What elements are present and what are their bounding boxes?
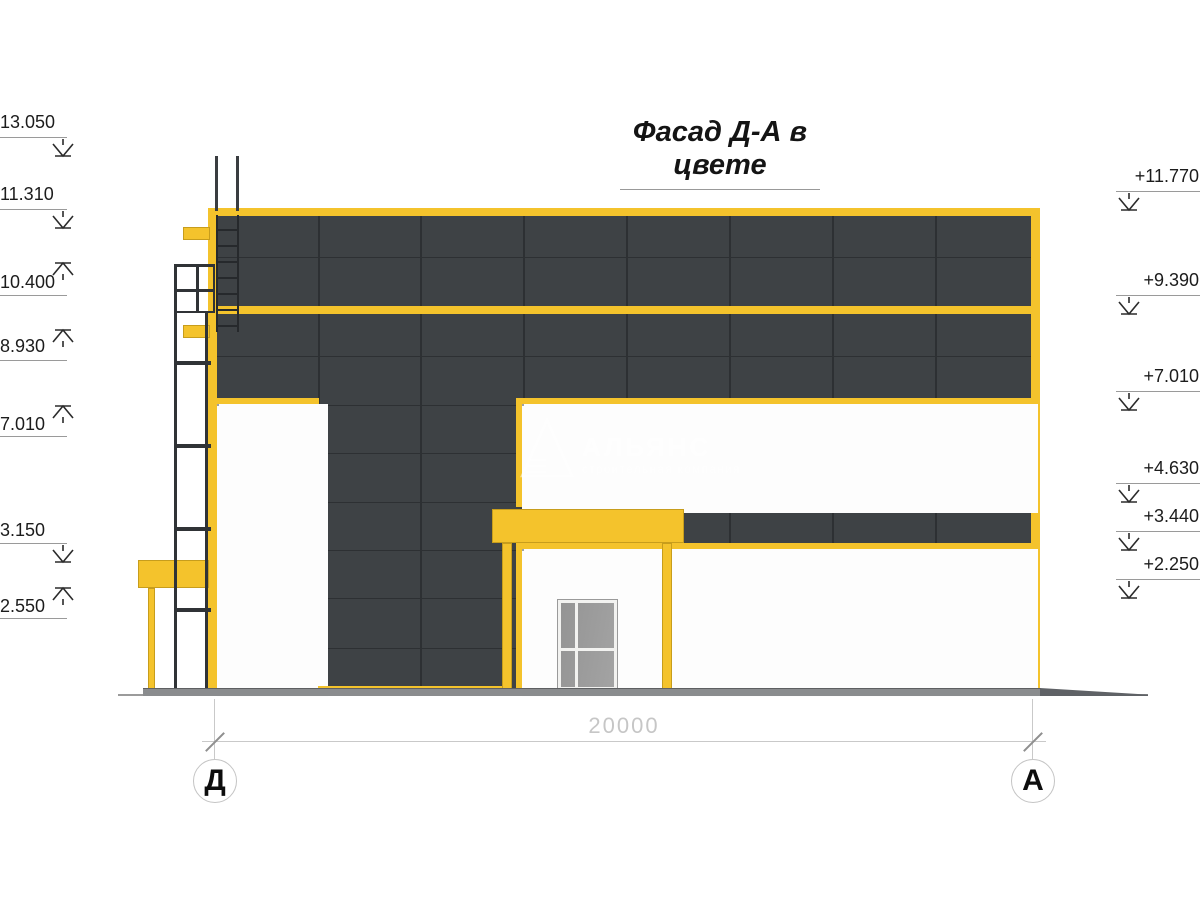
- elevation-value: +3.440: [1143, 506, 1199, 527]
- level-arrow-down-icon: [50, 139, 76, 159]
- level-arrow-down-icon: [50, 545, 76, 565]
- elevation-value: 8.930: [0, 336, 45, 357]
- elevation-value: +4.630: [1143, 458, 1199, 479]
- alliance-pyramid-logo: [520, 418, 574, 478]
- elevation-value: +11.770: [1135, 166, 1199, 187]
- elevation-value: 11.310: [0, 184, 54, 205]
- ladder-rail: [174, 313, 177, 691]
- ladder-bracket: [183, 227, 210, 240]
- facade-drawing: АЛЬЯНС строительная компания 20000 Д А: [0, 0, 1200, 900]
- elevation-mark: 3.150: [0, 520, 92, 576]
- level-arrow-up-icon: [50, 403, 76, 423]
- level-arrow-down-icon: [50, 211, 76, 231]
- elevation-mark: 10.400: [0, 272, 92, 328]
- door-leaf-divider: [575, 603, 578, 687]
- watermark-subtitle: строительная компания: [582, 464, 741, 476]
- elevation-mark: 7.010: [0, 414, 92, 470]
- level-arrow-down-icon: [1116, 297, 1142, 317]
- plinth: [143, 688, 1041, 696]
- window-pane: [522, 404, 524, 406]
- level-arrow-down-icon: [1116, 533, 1142, 553]
- panel-joint: [217, 257, 1031, 258]
- watermark-name: АЛЬЯНС: [582, 432, 711, 463]
- window-pane: [522, 549, 524, 551]
- entrance-door: [557, 599, 618, 691]
- window-pane: [217, 404, 219, 406]
- canopy-post-left: [502, 543, 512, 691]
- elevation-mark: 2.550: [0, 596, 92, 652]
- elevation-mark: +11.770: [1116, 166, 1200, 222]
- panel-joint: [217, 356, 1031, 357]
- roof-ladder-rail: [236, 156, 239, 211]
- parapet-band: [208, 208, 1040, 216]
- elevation-value: 2.550: [0, 596, 45, 617]
- canopy-post-right: [662, 543, 672, 691]
- door-rail: [561, 648, 614, 651]
- axis-bubble-a: А: [1011, 759, 1055, 803]
- elevation-value: 10.400: [0, 272, 55, 293]
- terrain-wedge: [1040, 688, 1148, 696]
- level-arrow-up-icon: [50, 260, 76, 280]
- level-arrow-up-icon: [50, 585, 76, 605]
- entrance-canopy: [492, 509, 684, 543]
- panel-joint: [420, 216, 422, 691]
- elevation-value: +2.250: [1143, 554, 1199, 575]
- level-arrow-down-icon: [1116, 485, 1142, 505]
- side-canopy-leg: [148, 588, 155, 691]
- dimension-tick: [205, 732, 225, 752]
- ladder-rung: [174, 361, 211, 365]
- extension-line: [1032, 699, 1033, 759]
- elevation-mark: 8.930: [0, 336, 92, 392]
- floor-band: [208, 306, 1040, 314]
- elevation-value: 3.150: [0, 520, 45, 541]
- dimension-tick: [1023, 732, 1043, 752]
- level-arrow-down-icon: [1116, 393, 1142, 413]
- ladder-rung: [174, 444, 211, 448]
- ladder-rung: [174, 527, 211, 531]
- ladder-rung: [174, 608, 211, 612]
- door-glass: [561, 603, 614, 687]
- drawing-title: Фасад Д-А в цвете: [620, 116, 820, 190]
- wall-ladder: [216, 215, 239, 332]
- elevation-mark: 11.310: [0, 184, 92, 240]
- roof-ladder-rail: [215, 156, 218, 211]
- elevation-mark: +7.010: [1116, 366, 1200, 422]
- elevation-mark: 13.050: [0, 112, 92, 168]
- level-arrow-down-icon: [1116, 193, 1142, 213]
- extension-line: [214, 699, 215, 759]
- elevation-value: +7.010: [1143, 366, 1199, 387]
- elevation-mark: +2.250: [1116, 554, 1200, 610]
- dimension-line: [202, 741, 1046, 742]
- elevation-value: +9.390: [1143, 270, 1199, 291]
- elevation-value: 7.010: [0, 414, 45, 435]
- level-arrow-down-icon: [1116, 581, 1142, 601]
- stair-window-block: [208, 398, 319, 691]
- elevation-value: 13.050: [0, 112, 55, 133]
- axis-bubble-d: Д: [193, 759, 237, 803]
- watermark: АЛЬЯНС строительная компания: [518, 412, 778, 490]
- glazing-grid: [217, 404, 328, 697]
- ladder-rail: [205, 313, 208, 691]
- platform-railing: [174, 264, 215, 313]
- level-arrow-up-icon: [50, 327, 76, 347]
- elevation-mark: +9.390: [1116, 270, 1200, 326]
- span-dimension: 20000: [559, 713, 689, 739]
